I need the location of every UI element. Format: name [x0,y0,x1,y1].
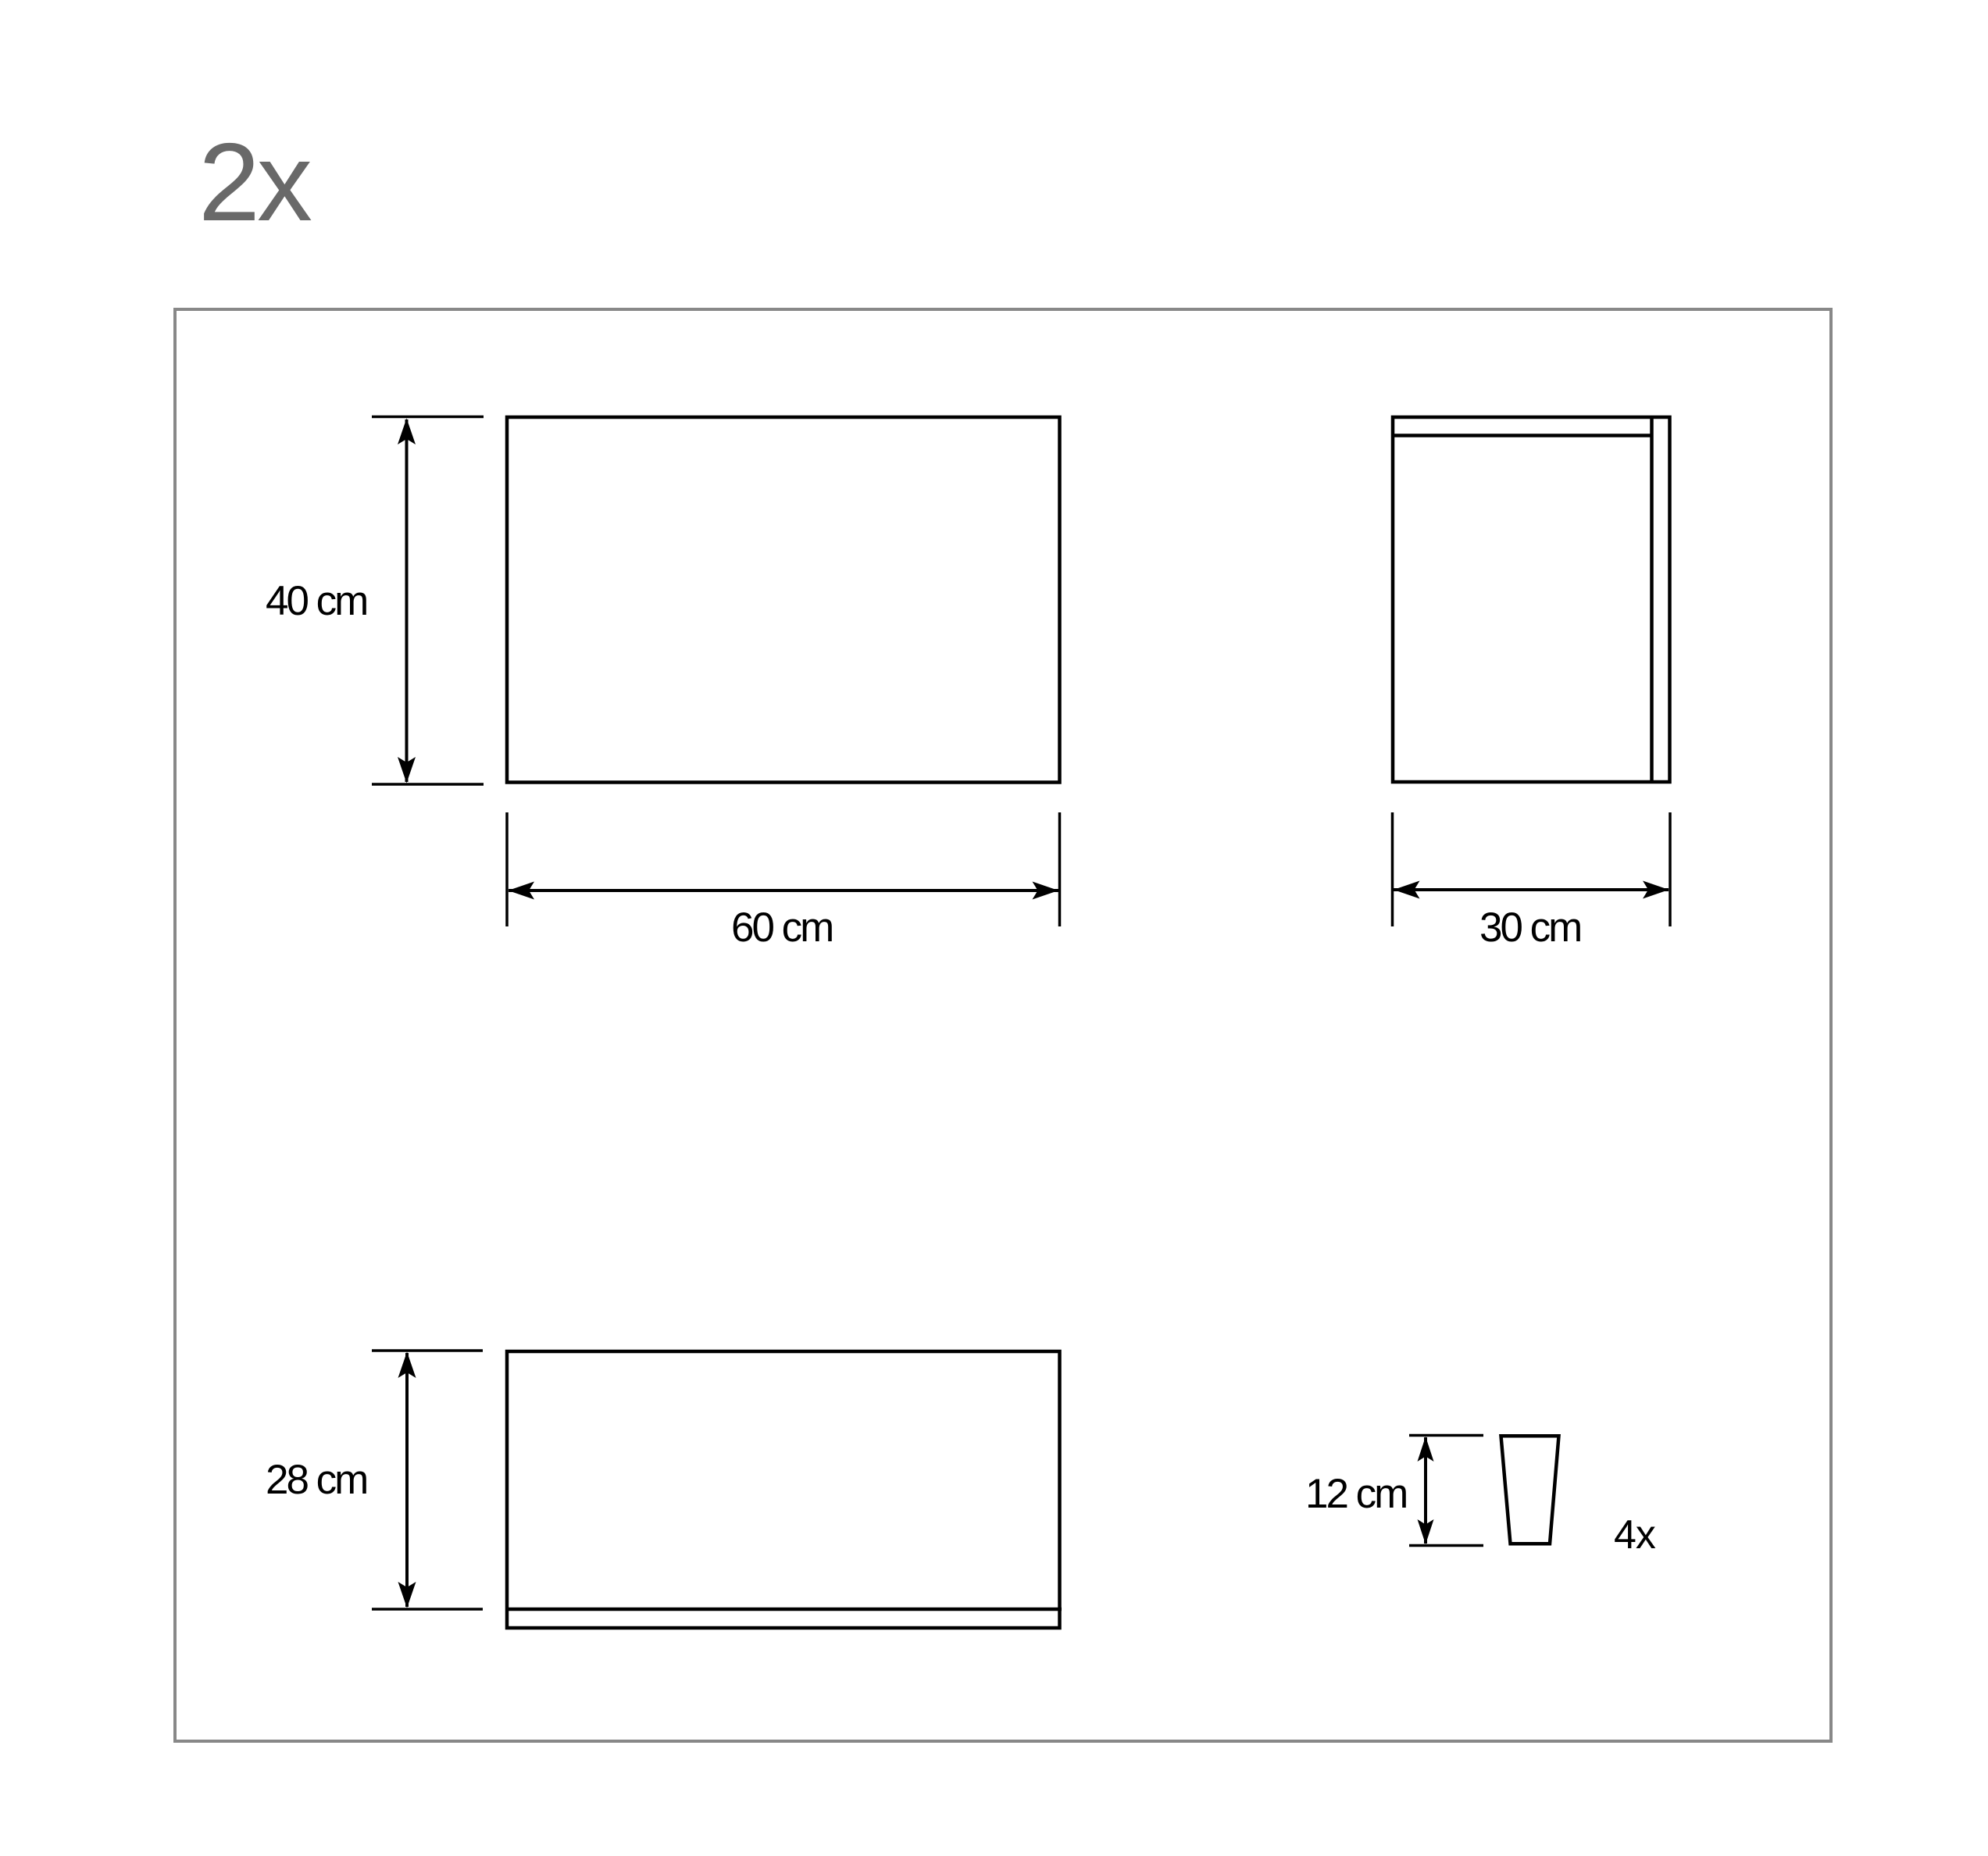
svg-text:28 cm: 28 cm [266,1457,366,1503]
svg-text:60 cm: 60 cm [731,905,832,951]
svg-text:4x: 4x [1614,1512,1656,1558]
svg-text:2x: 2x [198,120,312,244]
svg-text:40 cm: 40 cm [266,578,366,624]
svg-text:12 cm: 12 cm [1305,1471,1406,1517]
svg-text:30 cm: 30 cm [1479,905,1580,951]
